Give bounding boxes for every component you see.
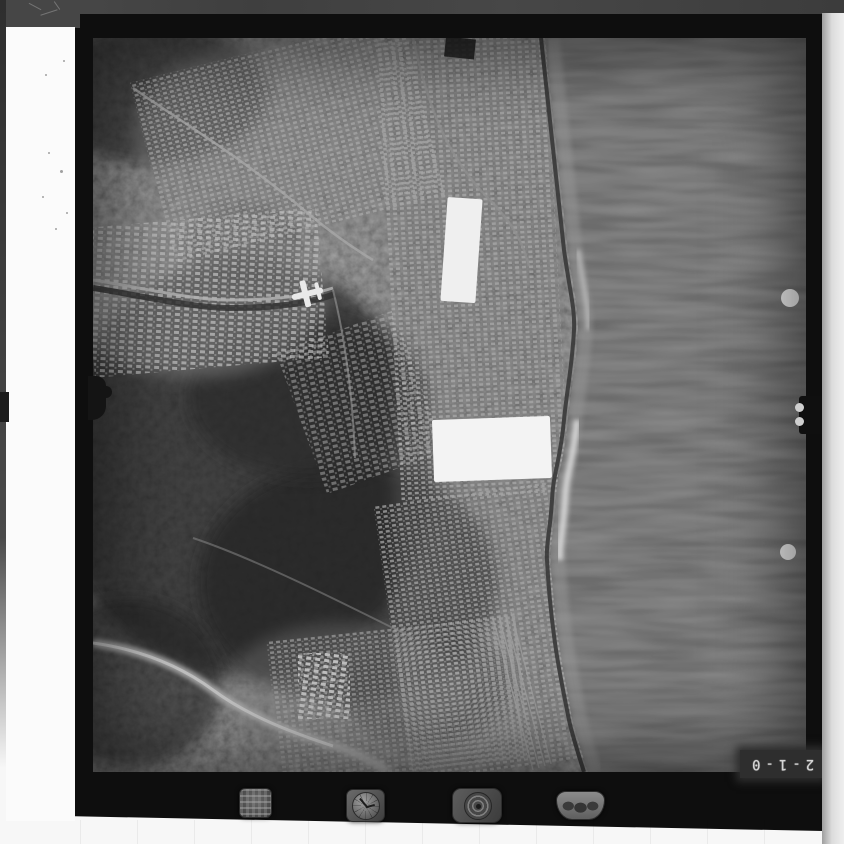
registration-dot-lower [780, 544, 796, 560]
data-plate [239, 788, 272, 818]
level-indicator [556, 791, 605, 820]
fiducial-notch-right [799, 396, 823, 434]
frame-number: 2-1-0 [747, 756, 814, 772]
fiducial-bump [795, 417, 804, 426]
aerial-photo-terrain [93, 38, 806, 772]
dust-speck [60, 170, 63, 173]
white-cloud-patch-lower [432, 416, 552, 482]
scan-edge-shadow [0, 0, 6, 768]
dust-speck [48, 152, 50, 154]
altimeter-center [476, 804, 481, 809]
registration-dot-upper [781, 289, 799, 307]
fiducial-bump [795, 403, 804, 412]
white-cloud-patch-upper [440, 197, 482, 303]
dust-speck [63, 60, 65, 62]
scan-bottom-streaks [80, 820, 820, 844]
edge-notch-mark [0, 392, 9, 422]
fiducial-notch-left [88, 376, 106, 420]
clock-hour-hand [366, 804, 375, 808]
film-margin-left [6, 27, 75, 821]
film-margin-right [822, 13, 844, 844]
film-scan: 2-1-0 [0, 0, 844, 844]
fiducial-notch-left-lobe [100, 386, 112, 398]
aerial-photo [93, 38, 806, 772]
dust-speck [42, 196, 44, 198]
clock-dial [346, 789, 385, 822]
altimeter-dial [452, 788, 502, 823]
clock-face [352, 792, 380, 820]
frame-number-band: 2-1-0 [740, 750, 822, 778]
film-edge-top [0, 0, 844, 14]
dust-speck [66, 212, 68, 214]
dust-speck [55, 228, 57, 230]
dust-speck [45, 74, 47, 76]
